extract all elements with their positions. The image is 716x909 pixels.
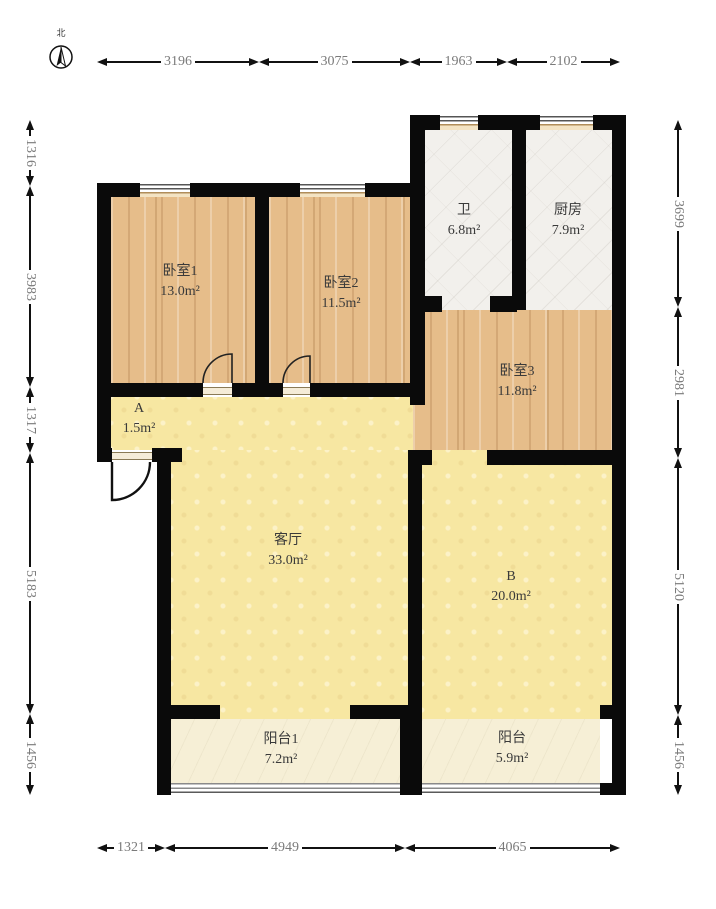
- room-label-bedroom2: 卧室211.5m²: [321, 274, 360, 314]
- dim-left-5: 1456: [22, 714, 38, 795]
- entry-door-icon: [112, 462, 150, 500]
- door-swing-arcs: [0, 0, 716, 909]
- room-label-living-room: 客厅33.0m²: [268, 531, 308, 571]
- dim-left-1: 1316: [22, 120, 38, 186]
- dim-right-4: 1456: [670, 715, 686, 795]
- dim-left-4: 5183: [22, 453, 38, 714]
- dim-top-1: 3196: [97, 54, 259, 70]
- room-label-area-b: B20.0m²: [491, 567, 531, 607]
- room-label-balcony2: 阳台5.9m²: [496, 729, 529, 769]
- room-label-bedroom3: 卧室311.8m²: [497, 362, 536, 402]
- room-label-bath: 卫6.8m²: [448, 201, 481, 241]
- room-label-balcony1: 阳台17.2m²: [264, 730, 299, 770]
- room-label-area-a: A1.5m²: [123, 399, 156, 439]
- dim-left-3: 1317: [22, 387, 38, 453]
- dim-top-4: 2102: [507, 54, 620, 70]
- bedroom2-door-icon: [283, 356, 310, 383]
- dim-bottom-3: 4065: [405, 840, 620, 856]
- room-label-kitchen: 厨房7.9m²: [552, 201, 585, 241]
- dim-bottom-1: 1321: [97, 840, 165, 856]
- floor-plan: 北: [0, 0, 716, 909]
- dim-left-2: 3983: [22, 186, 38, 387]
- dim-right-1: 3699: [670, 120, 686, 307]
- dim-right-3: 5120: [670, 458, 686, 715]
- bedroom1-door-icon: [203, 354, 232, 383]
- room-label-bedroom1: 卧室113.0m²: [160, 262, 200, 302]
- dim-bottom-2: 4949: [165, 840, 405, 856]
- dim-top-3: 1963: [410, 54, 507, 70]
- dim-right-2: 2981: [670, 307, 686, 458]
- dim-top-2: 3075: [259, 54, 410, 70]
